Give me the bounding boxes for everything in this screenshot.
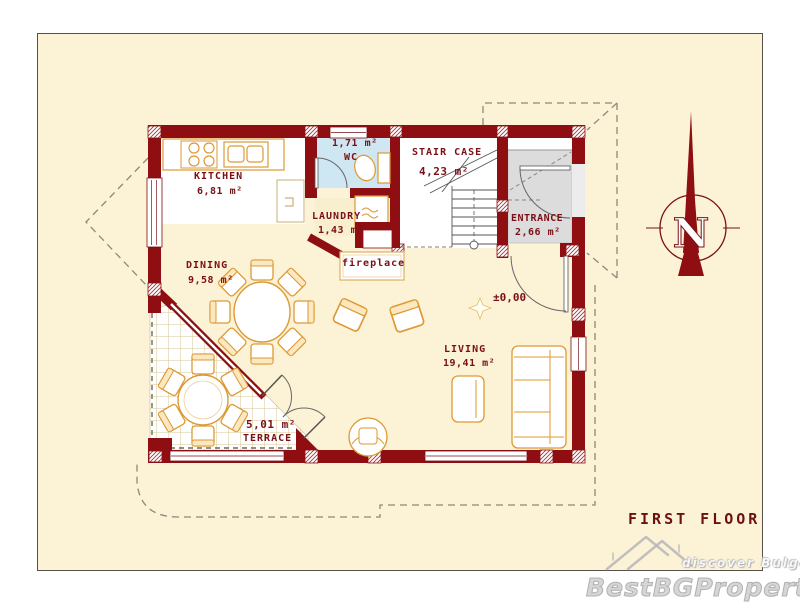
- floor-plan-image: N KITCHEN 6,81 m² 1,71 m² WC LAUNDRY 1,4…: [0, 0, 800, 611]
- dining-name-label: DINING: [186, 261, 228, 271]
- kitchen-name-label: KITCHEN: [194, 172, 243, 182]
- wc-area-label: 1,71 m²: [332, 139, 378, 149]
- living-name-label: LIVING: [444, 345, 486, 355]
- dining-area-label: 9,58 m²: [188, 276, 234, 286]
- terrace-name-label: TERRACE: [243, 434, 292, 444]
- level-marker-label: ±0,00: [493, 291, 526, 304]
- terrace-area-label: 5,01 m²: [246, 419, 296, 430]
- fireplace-label: fireplace: [342, 259, 405, 269]
- compass-letter: N: [673, 210, 710, 257]
- floor-title: FIRST FLOOR: [628, 510, 760, 528]
- level-star-icon: [469, 298, 491, 319]
- living-area-label: 19,41 m²: [443, 359, 495, 369]
- watermark-brand: BestBGProperties: [586, 573, 800, 602]
- wc-name-label: WC: [344, 153, 358, 163]
- staircase-area-label: 4,23 m²: [419, 166, 469, 177]
- entrance-name-label: ENTRANCE: [511, 214, 563, 224]
- watermark-tagline: discover Bulgaria: [682, 556, 800, 570]
- compass-north-icon: N: [646, 111, 740, 276]
- entrance-area-label: 2,66 m²: [515, 228, 561, 238]
- watermark-roof-logo: [607, 537, 692, 569]
- living-furniture: [332, 298, 566, 456]
- staircase-name-label: STAIR CASE: [412, 148, 482, 158]
- laundry-name-label: LAUNDRY: [312, 212, 361, 222]
- kitchen-area-label: 6,81 m²: [197, 187, 243, 197]
- laundry-area-label: 1,43 m²: [318, 226, 364, 236]
